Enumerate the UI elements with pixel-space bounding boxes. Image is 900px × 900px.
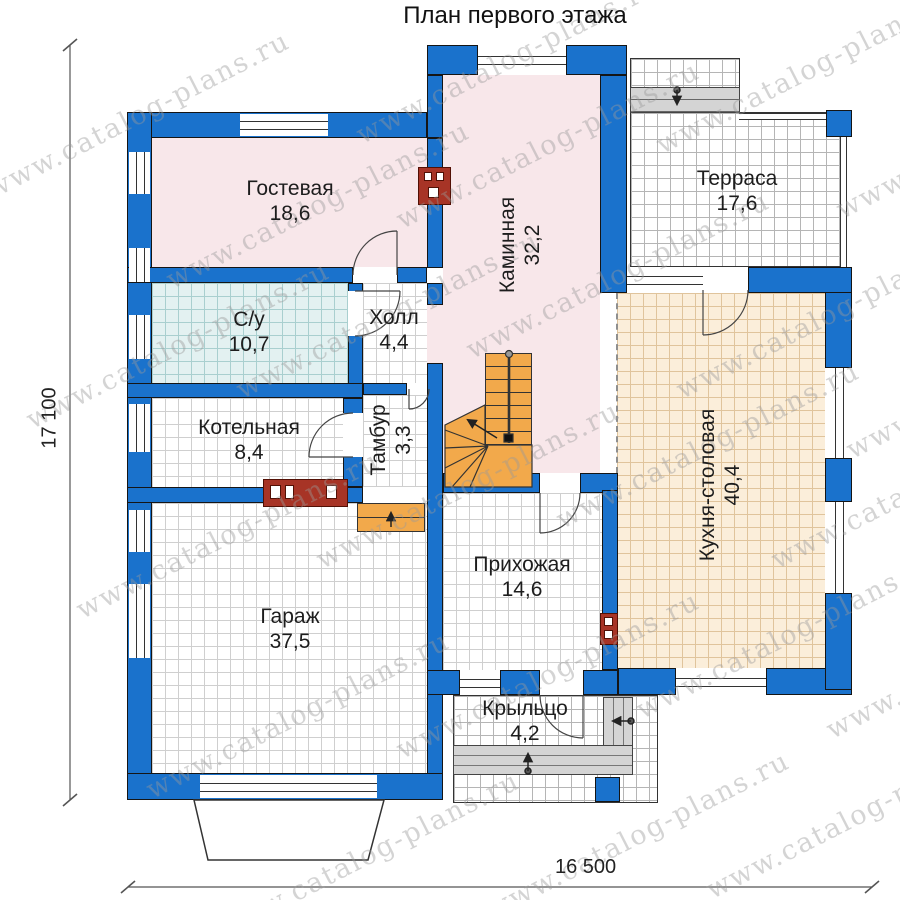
open-boundary-dashed-line — [616, 293, 618, 473]
room-area: 17,6 — [697, 192, 778, 217]
window-pane — [460, 679, 500, 688]
window-pane — [136, 248, 145, 282]
kitchen-flue — [600, 613, 618, 645]
wall-segment — [427, 75, 443, 138]
window — [829, 502, 848, 593]
window — [129, 152, 150, 194]
window — [129, 404, 150, 452]
driveway — [194, 800, 384, 860]
window — [129, 248, 150, 282]
wall-segment — [600, 75, 627, 293]
garage-door-panel — [200, 783, 377, 792]
dimension-width: 16 500 — [555, 856, 616, 879]
watermark-text: www.catalog-plans.ru — [701, 725, 900, 900]
room-name: Гараж — [260, 605, 319, 630]
room-label-garage: Гараж 37,5 — [260, 605, 319, 655]
floor-plan-page: www.catalog-plans.ruwww.catalog-plans.ru… — [0, 0, 900, 900]
terrace-pillar — [826, 110, 852, 137]
door-opening — [343, 413, 363, 457]
room-area: 8,4 — [198, 441, 300, 466]
window-pane — [136, 584, 145, 658]
wall-segment — [583, 670, 618, 695]
room-name: Кухня-столовая — [696, 409, 721, 561]
fireplace-flue — [436, 172, 444, 181]
porch-steps-front — [453, 745, 633, 775]
window — [627, 271, 703, 289]
fireplace — [418, 167, 451, 205]
wall-segment — [127, 267, 353, 283]
room-area: 40,4 — [721, 409, 746, 561]
room-name: Гостевая — [246, 177, 333, 202]
room-label-entrance: Прихожая 14,6 — [473, 553, 570, 603]
room-label-hall: Холл 4,4 — [369, 306, 419, 356]
chimney-flue — [270, 485, 281, 499]
garage-door — [200, 775, 377, 798]
room-label-porch: Крыльцо 4,2 — [482, 697, 568, 747]
wall-segment — [397, 267, 427, 283]
boiler-chimney — [263, 479, 348, 507]
window-pane — [627, 276, 703, 285]
window-pane — [136, 152, 145, 194]
room-label-kitchen: Кухня-столовая 40,4 — [696, 409, 746, 561]
wall-segment — [363, 383, 407, 395]
wall-segment — [748, 267, 852, 293]
window — [129, 315, 150, 359]
terrace-platform — [630, 58, 740, 88]
wall-segment — [427, 45, 478, 75]
window — [829, 368, 848, 458]
window-pane — [676, 678, 766, 687]
window — [240, 114, 328, 136]
fireplace-flue — [424, 172, 432, 181]
room-area: 4,4 — [369, 331, 419, 356]
window — [676, 670, 766, 693]
room-label-terrace: Терраса 17,6 — [697, 167, 778, 217]
room-area: 3,3 — [392, 404, 417, 475]
chimney-flue — [326, 485, 337, 499]
room-name: Прихожая — [473, 553, 570, 578]
staircase-flight — [485, 353, 532, 445]
wall-segment — [427, 363, 443, 800]
room-label-boiler: Котельная 8,4 — [198, 416, 300, 466]
room-name: Тамбур — [367, 404, 392, 475]
room-label-bathroom: С/у 10,7 — [229, 308, 270, 358]
room-area: 18,6 — [246, 202, 333, 227]
window-pane — [835, 368, 844, 458]
dimension-height: 17 100 — [39, 387, 62, 448]
window — [129, 584, 150, 658]
wall-segment — [427, 283, 443, 305]
room-name: Терраса — [697, 167, 778, 192]
room-area: 10,7 — [229, 333, 270, 358]
page-title: План первого этажа — [403, 2, 626, 30]
wall-segment — [825, 593, 852, 690]
room-label-guest: Гостевая 18,6 — [246, 177, 333, 227]
window-pane — [478, 56, 566, 65]
room-name: Котельная — [198, 416, 300, 441]
room-area: 14,6 — [473, 578, 570, 603]
window — [460, 672, 500, 693]
wall-segment — [127, 383, 363, 398]
wall-segment — [427, 670, 460, 695]
wall-segment — [566, 45, 627, 75]
window-pane — [136, 510, 145, 552]
garage-entry-steps — [357, 503, 425, 532]
room-label-vestibule: Тамбур 3,3 — [367, 404, 417, 475]
window-pane — [835, 502, 844, 593]
wall-segment — [618, 668, 676, 695]
room-name: Холл — [369, 306, 419, 331]
chimney-flue — [285, 485, 294, 499]
fireplace-flue — [428, 187, 439, 198]
porch-pillar — [595, 777, 620, 802]
window-pane — [136, 404, 145, 452]
wall-segment — [127, 112, 152, 800]
chimney-flue — [604, 617, 613, 626]
room-area: 37,5 — [260, 630, 319, 655]
door-opening — [348, 291, 363, 336]
room-name: С/у — [229, 308, 270, 333]
room-name: Крыльцо — [482, 697, 568, 722]
wall-segment — [443, 473, 540, 493]
passage-hall-fireplace — [427, 303, 443, 363]
terrace-steps — [630, 87, 740, 113]
terrace-railing — [739, 113, 828, 120]
window — [478, 47, 566, 73]
wall-segment — [500, 670, 540, 695]
room-area: 4,2 — [482, 722, 568, 747]
window-pane — [240, 121, 328, 130]
wall-segment — [825, 458, 852, 502]
room-name: Каминная — [496, 197, 521, 293]
window — [129, 510, 150, 552]
chimney-flue — [604, 630, 613, 639]
room-area: 32,2 — [521, 197, 546, 293]
window-pane — [136, 315, 145, 359]
room-label-fireplace: Каминная 32,2 — [496, 197, 546, 293]
